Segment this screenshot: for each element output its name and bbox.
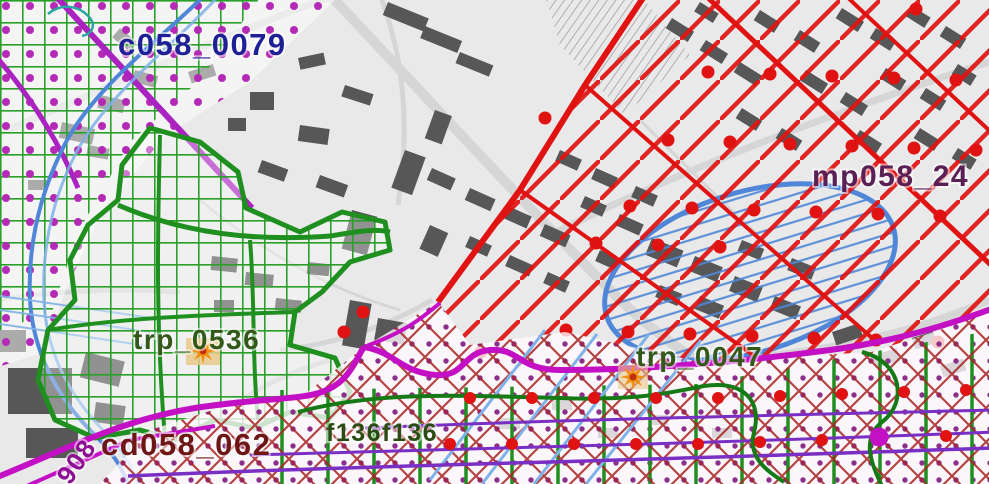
- label-trp-0536: trp_0536: [133, 324, 260, 355]
- map-viewport: c058_0079 mp058_24 trp_0536 trp_0047 cd0…: [0, 0, 989, 484]
- label-trp-0047: trp_0047: [636, 341, 763, 372]
- map-canvas[interactable]: c058_0079 mp058_24 trp_0536 trp_0047 cd0…: [0, 0, 989, 484]
- label-mp058-24: mp058_24: [812, 160, 969, 193]
- magenta-marker-dot: [870, 428, 889, 447]
- label-c058-0079: c058_0079: [118, 27, 287, 62]
- label-cd058-062: cd058_062: [101, 427, 271, 462]
- label-f136f136: f136f136: [326, 419, 438, 447]
